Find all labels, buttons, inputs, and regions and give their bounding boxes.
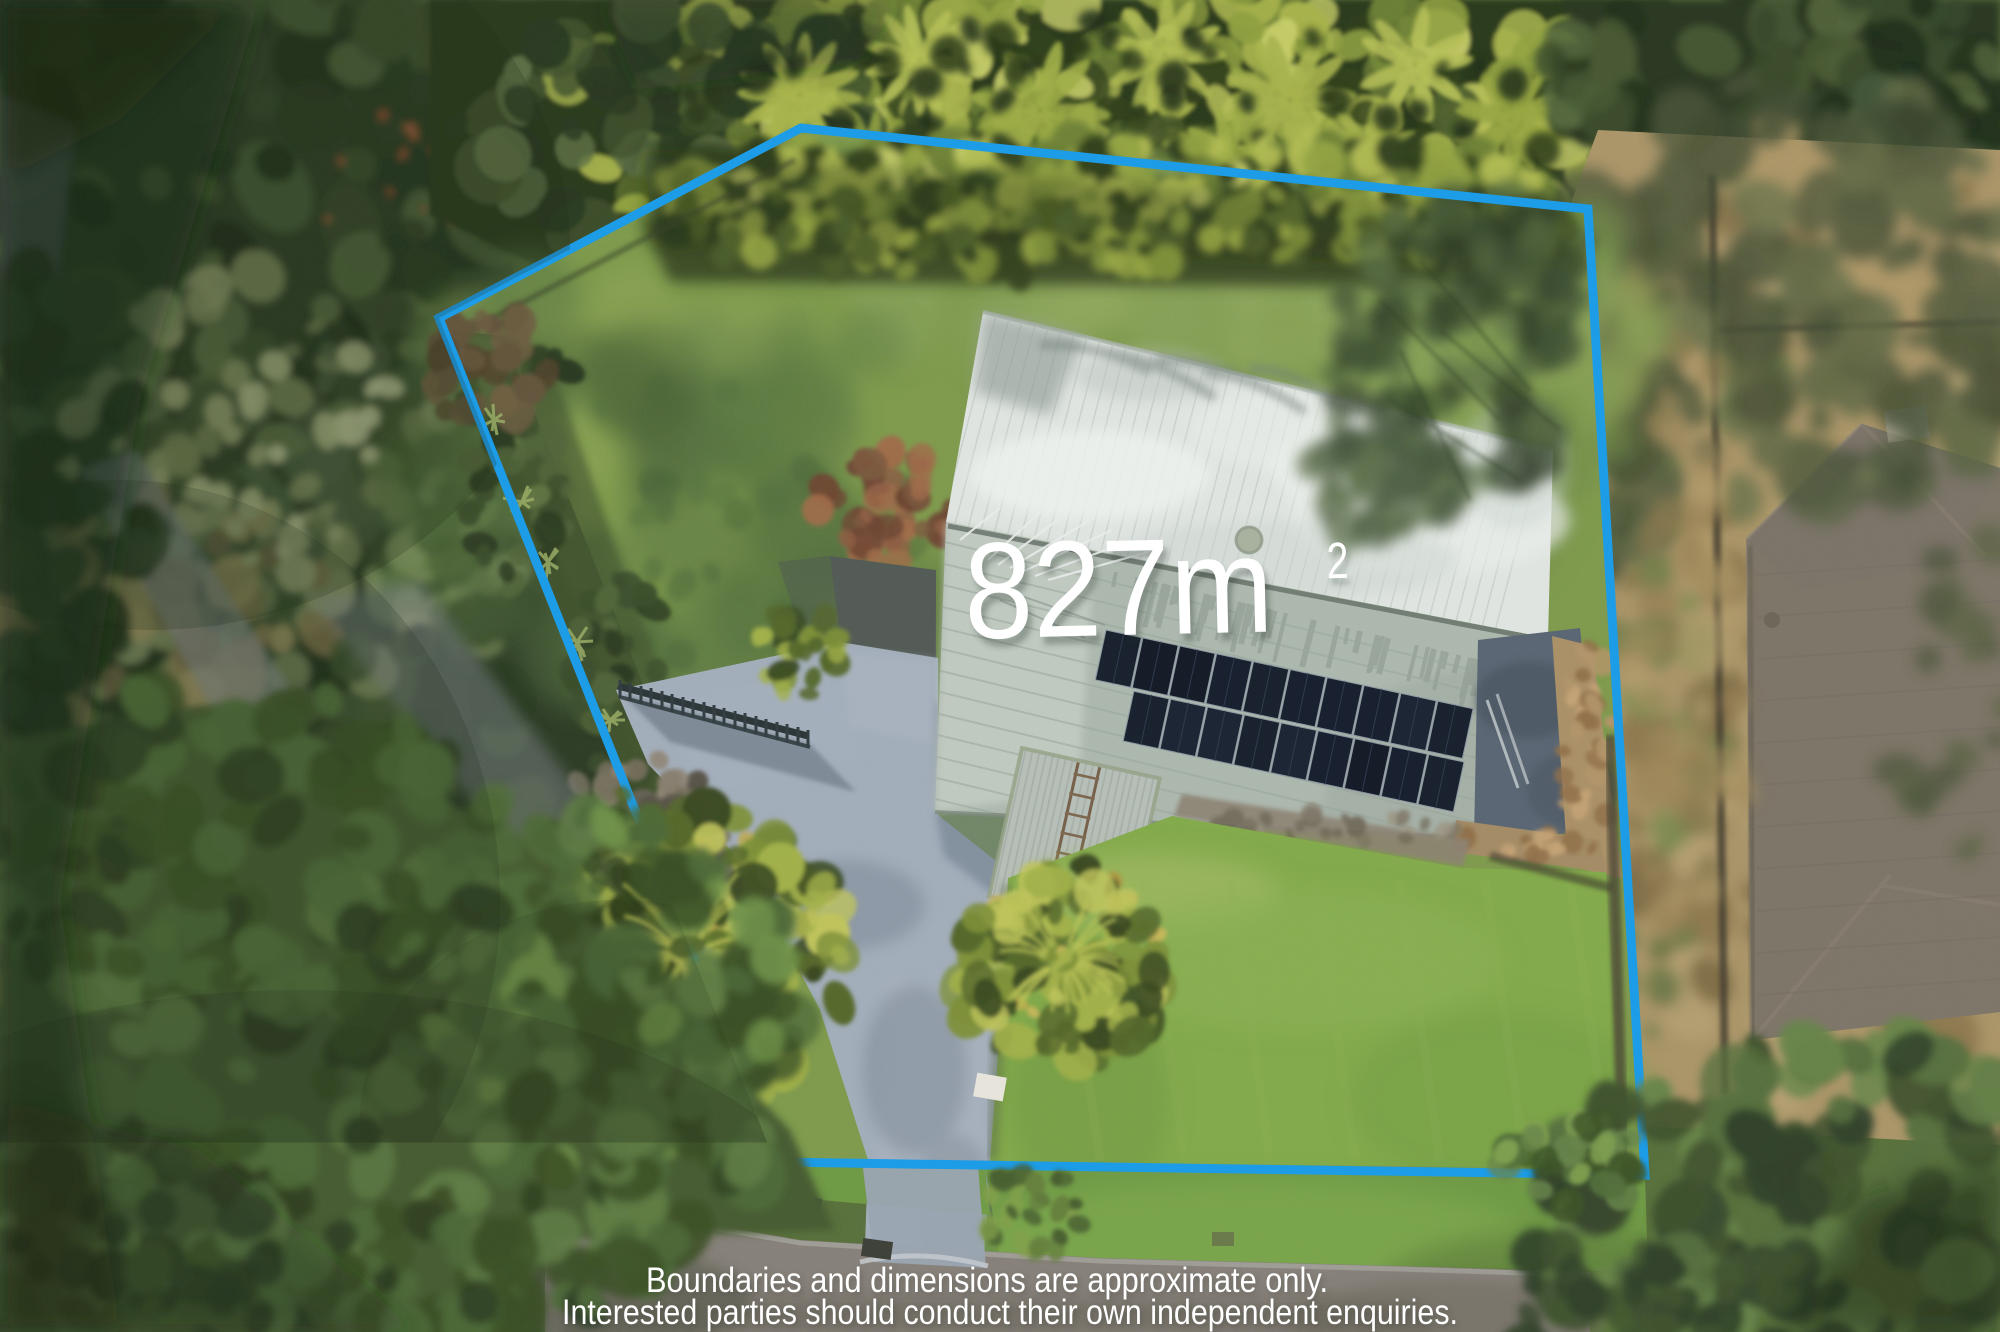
svg-text:827m: 827m (962, 509, 1274, 669)
svg-text:2: 2 (1326, 532, 1349, 589)
svg-text:Interested parties should cond: Interested parties should conduct their … (562, 1293, 1458, 1332)
